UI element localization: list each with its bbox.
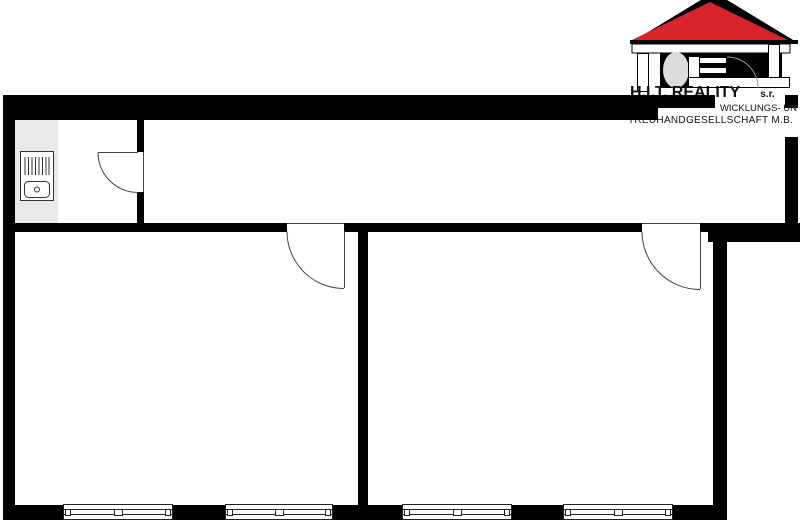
door-entry-arc [98,153,138,193]
fingerprint-mark [663,52,689,88]
roof-eave [630,40,798,44]
kitchen-appliance-icon [20,151,54,201]
window-right-room-2 [563,504,673,520]
roof-red [632,2,788,40]
fascia-beam [632,44,790,53]
floorplan-canvas: H.I.T. REALITYs.r. WICKLUNGS- UN TREUHAN… [0,0,800,525]
letter-e-arm-top [700,58,727,64]
company-legal-form: s.r. [760,89,774,100]
window-left-room-2 [225,504,333,520]
company-logo-house-icon [630,0,800,92]
letter-t-stem [769,45,780,78]
letter-e-arm-mid [700,68,727,74]
window-right-room-1 [402,504,512,520]
window-left-room-1 [63,504,173,520]
wall-top-over-text-left [618,95,658,120]
door-left-arc [287,232,344,289]
wall-top-over-text-right [658,95,715,108]
door-right-arc [642,232,700,290]
